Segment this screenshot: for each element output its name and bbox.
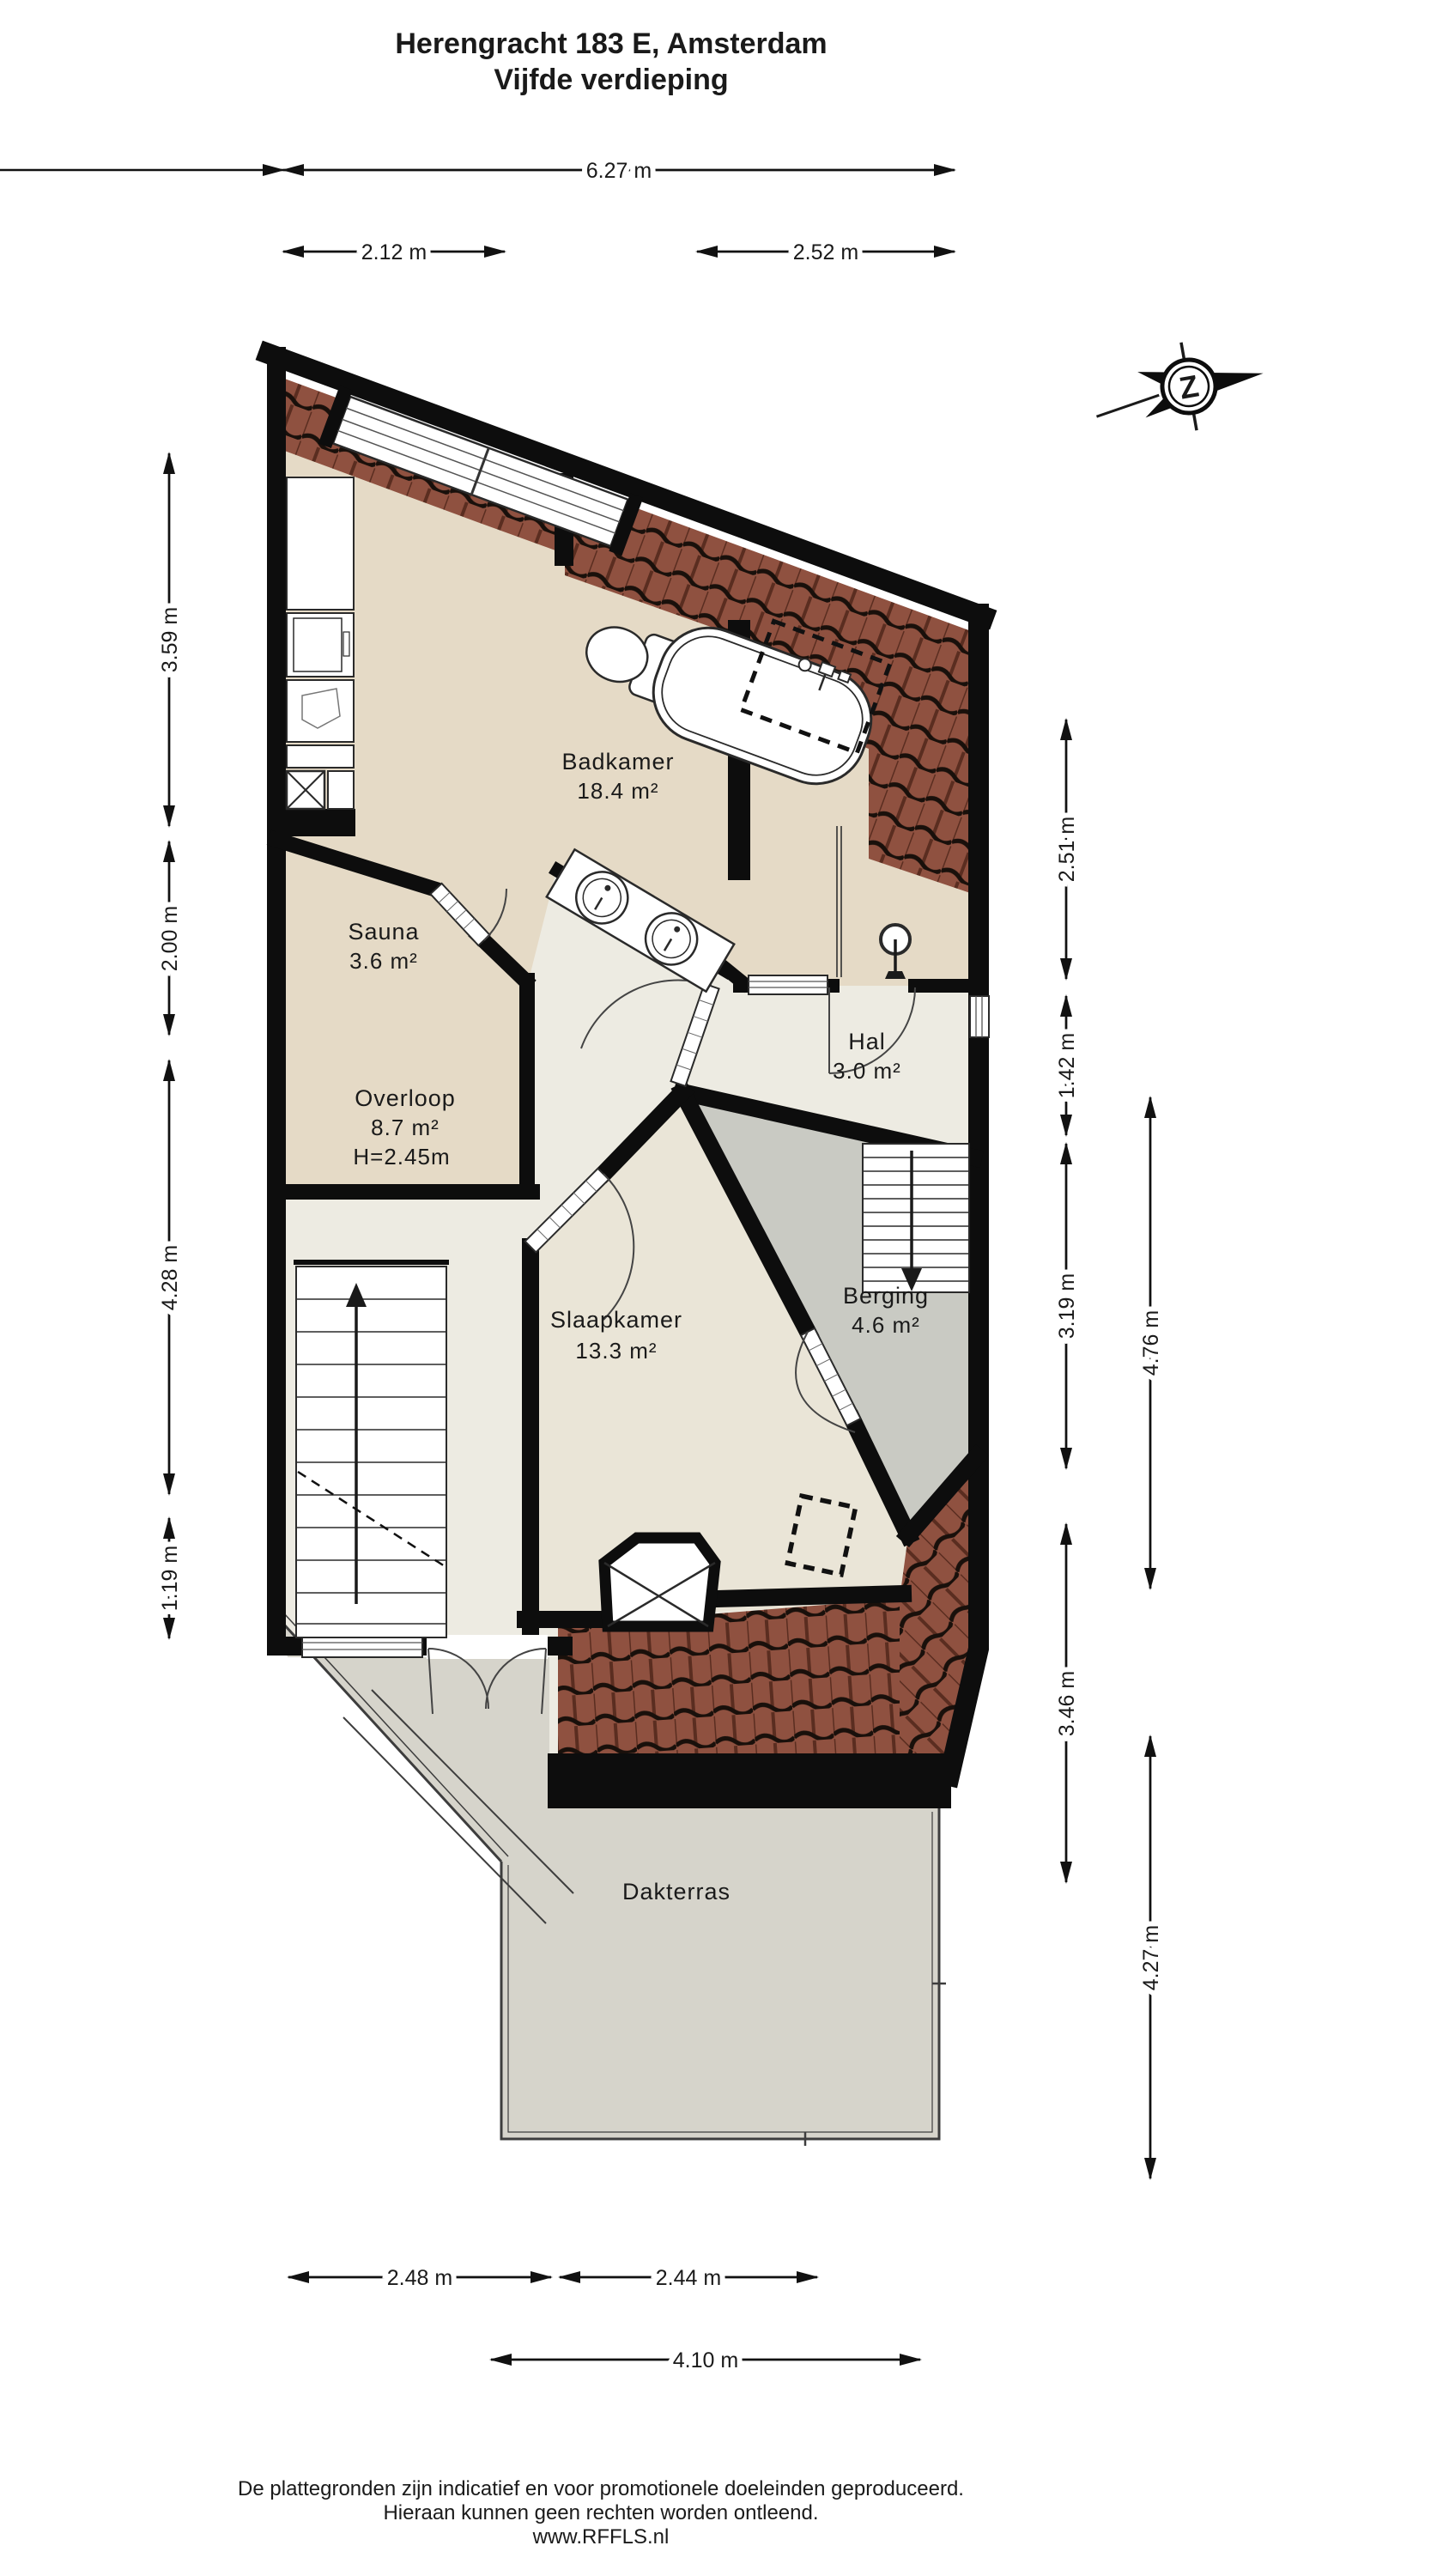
wall-corner-block — [276, 809, 355, 836]
dim-label-119: 1.19 m — [158, 1546, 182, 1611]
floorplan-page: Herengracht 183 E, Amsterdam Vijfde verd… — [0, 0, 1449, 2576]
dim-label-142: 1.42 m — [1055, 1033, 1079, 1098]
label-slaapkamer: Slaapkamer — [550, 1307, 682, 1333]
label-dakterras: Dakterras — [622, 1879, 731, 1905]
label-overloop-area: 8.7 m² — [371, 1115, 440, 1140]
stairs-down — [863, 1144, 969, 1292]
label-sauna: Sauna — [348, 919, 419, 945]
label-hal-area: 3.0 m² — [833, 1058, 901, 1084]
dim-label-212: 2.12 m — [361, 240, 427, 264]
stairs-up — [296, 1267, 446, 1637]
label-berging: Berging — [843, 1283, 929, 1309]
dim-label-428: 4.28 m — [158, 1245, 182, 1310]
label-overloop: Overloop — [355, 1085, 456, 1111]
shaft-icon — [287, 771, 354, 809]
label-overloop-height: H=2.45m — [353, 1144, 450, 1170]
footer-disclaimer-2: Hieraan kunnen geen rechten worden ontle… — [383, 2501, 818, 2524]
dim-label-200: 2.00 m — [158, 906, 182, 971]
dim-label-359: 3.59 m — [158, 607, 182, 672]
label-sauna-area: 3.6 m² — [349, 948, 418, 974]
dim-label-627: 6.27 m — [586, 159, 652, 183]
dim-label-248: 2.48 m — [387, 2266, 452, 2290]
footer-disclaimer-1: De plattegronden zijn indicatief en voor… — [238, 2477, 964, 2500]
dim-label-346: 3.46 m — [1055, 1671, 1079, 1736]
dim-label-251: 2.51 m — [1055, 817, 1079, 882]
label-badkamer: Badkamer — [561, 749, 674, 775]
sink-cabinet — [287, 680, 354, 742]
dim-label-427: 4.27 m — [1139, 1925, 1163, 1990]
dim-label-244: 2.44 m — [656, 2266, 721, 2290]
page-title: Herengracht 183 E, Amsterdam — [395, 27, 827, 60]
dim-label-252: 2.52 m — [793, 240, 858, 264]
page-subtitle: Vijfde verdieping — [494, 64, 728, 96]
tall-cabinet — [287, 477, 354, 610]
footer: De plattegronden zijn indicatief en voor… — [238, 2477, 964, 2549]
footer-website: www.RFFLS.nl — [532, 2525, 670, 2549]
dim-label-476: 4.76 m — [1139, 1310, 1163, 1376]
skylight — [604, 1538, 715, 1626]
right-wall-window — [970, 996, 989, 1037]
label-badkamer-area: 18.4 m² — [577, 778, 658, 804]
dim-label-410: 4.10 m — [673, 2348, 738, 2372]
dim-label-319: 3.19 m — [1055, 1273, 1079, 1339]
bottom-window — [302, 1637, 422, 1657]
label-hal: Hal — [848, 1029, 886, 1054]
label-slaapkamer-area: 13.3 m² — [575, 1338, 657, 1364]
bathroom-cabinets — [287, 477, 354, 809]
hal-window — [749, 975, 828, 994]
wall-parapet — [548, 1753, 951, 1808]
floorplan-canvas: Herengracht 183 E, Amsterdam Vijfde verd… — [0, 0, 1449, 2576]
label-berging-area: 4.6 m² — [852, 1312, 920, 1338]
compass-icon: Z — [1087, 330, 1271, 447]
